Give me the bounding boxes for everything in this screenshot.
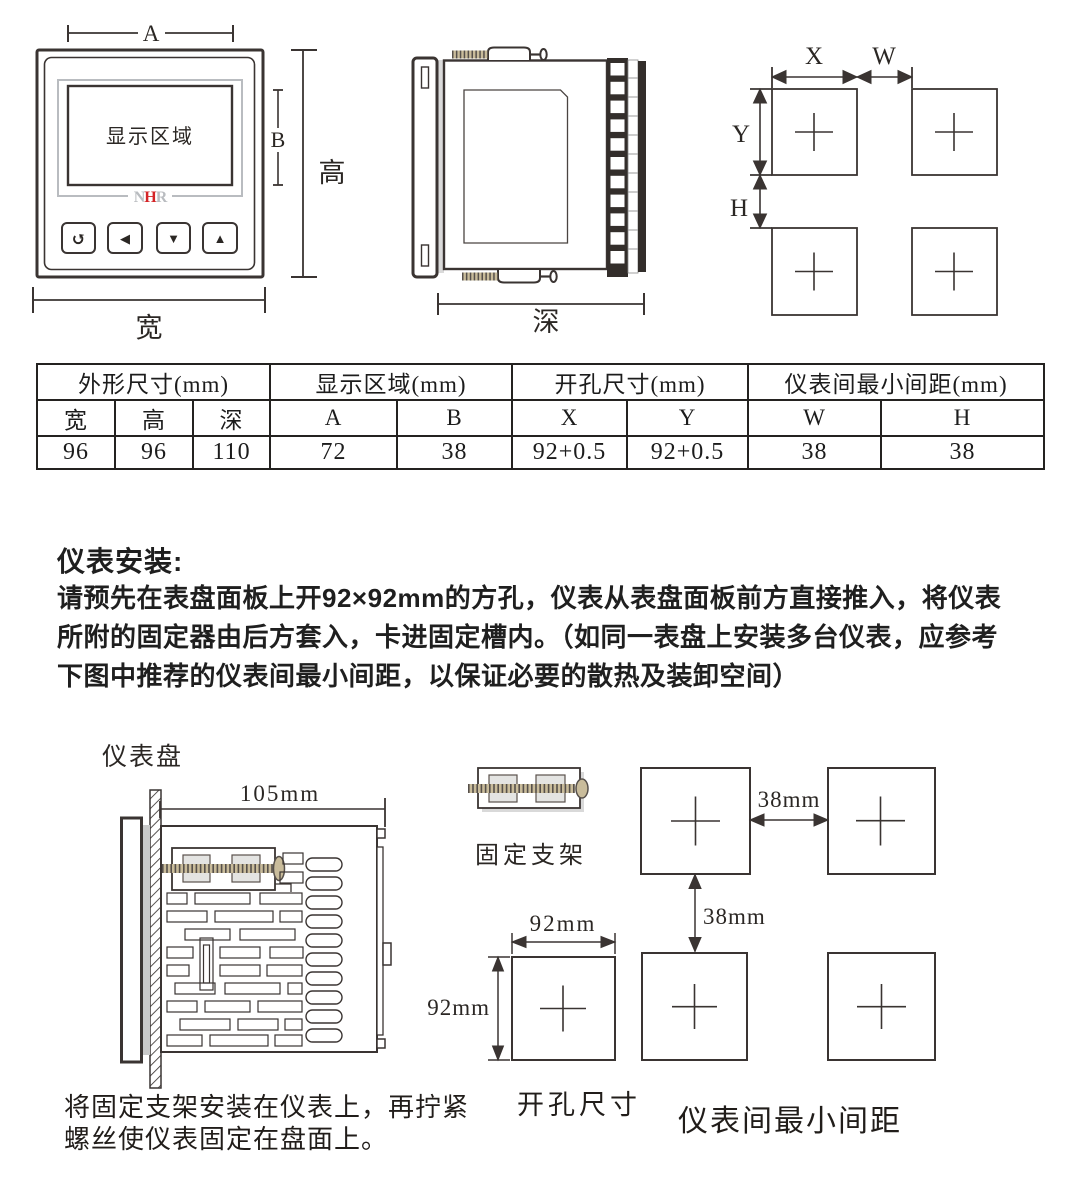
display-area-label: 显示区域	[106, 125, 194, 148]
panel-label: 仪表盘	[102, 743, 183, 771]
table-value-row: 96 96 110 72 38 92+0.5 92+0.5 38 38	[37, 436, 1044, 469]
table-value-cell: 96	[115, 436, 193, 469]
cutout-pattern-diagram: X W Y H	[720, 30, 1030, 330]
rear-rail-stop	[383, 943, 391, 965]
dim-width	[33, 287, 265, 313]
dim-b-label: B	[271, 127, 286, 152]
table-header-cell: 深	[193, 400, 270, 436]
dim-w-label: W	[872, 43, 896, 70]
up-arrow-icon: ▲	[214, 231, 227, 246]
rear-rail	[377, 847, 383, 1035]
table-value-cell: 72	[270, 436, 397, 469]
dim-y-h	[750, 89, 772, 228]
mount-bracket-top	[452, 48, 547, 61]
dim-x-label: X	[805, 43, 823, 70]
table-header-cell: B	[397, 400, 512, 436]
down-arrow-icon: ▼	[167, 231, 180, 246]
table-header-cell: 高	[115, 400, 193, 436]
left-arrow-icon: ◀	[120, 231, 130, 246]
dim-height-label: 高	[319, 158, 346, 188]
table-value-cell: 96	[37, 436, 115, 469]
dim-height	[291, 50, 317, 277]
table-header-cell: 宽	[37, 400, 115, 436]
dim-105mm-label: 105mm	[240, 781, 320, 806]
dim-a-label: A	[143, 21, 160, 46]
cutout-squares	[772, 89, 997, 315]
front-bezel	[413, 58, 437, 277]
installation-body: 请预先在表盘面板上开92×92mm的方孔，仪表从表盘面板前方直接推入，将仪表 所…	[57, 579, 1037, 696]
rear-hook-bottom	[377, 1039, 385, 1048]
dim-width-label: 宽	[136, 313, 163, 343]
installation-heading: 仪表安装:	[57, 540, 183, 580]
screw-head-icon	[550, 271, 556, 282]
table-value-cell: 38	[397, 436, 512, 469]
spacing-caption: 仪表间最小间距	[678, 1096, 902, 1140]
front-view-diagram: A 显示区域 NHR B 高 ↺ ◀ ▼	[30, 15, 360, 350]
table-group-cell: 仪表间最小间距(mm)	[748, 364, 1044, 400]
panel-cross-section	[150, 790, 161, 1088]
dim-h-label: H	[730, 195, 748, 222]
side-view-diagram: 深	[400, 30, 670, 345]
installation-line: 所附的固定器由后方套入，卡进固定槽内。（如同一表盘上安装多台仪表，应参考	[57, 618, 1037, 657]
table-header-cell: A	[270, 400, 397, 436]
rear-hook-top	[377, 829, 385, 838]
dim-y-label: Y	[732, 121, 750, 148]
table-subheader-row: 宽 高 深 A B X Y W H	[37, 400, 1044, 436]
gap-vertical-arrow	[689, 875, 701, 952]
gap-vertical-label: 38mm	[703, 904, 766, 929]
table-value-cell: 38	[881, 436, 1044, 469]
table-group-cell: 外形尺寸(mm)	[37, 364, 270, 400]
table-value-cell: 92+0.5	[627, 436, 748, 469]
table-group-cell: 显示区域(mm)	[270, 364, 512, 400]
table-header-cell: Y	[627, 400, 748, 436]
cutout-height-label: 92mm	[427, 995, 490, 1020]
table-value-cell: 110	[193, 436, 270, 469]
gap-horizontal-arrow	[750, 814, 828, 826]
nhr-logo: NHR	[134, 189, 168, 206]
front-bezel	[122, 818, 142, 1062]
meter-body	[444, 61, 607, 270]
table-value-cell: 38	[748, 436, 881, 469]
bracket-note-line: 螺丝使仪表固定在盘面上。	[64, 1124, 469, 1156]
cutout-width-dim	[512, 933, 615, 954]
bracket-note-line: 将固定支架安装在仪表上，再拧紧	[64, 1092, 469, 1124]
dimension-table: 外形尺寸(mm) 显示区域(mm) 开孔尺寸(mm) 仪表间最小间距(mm) 宽…	[36, 363, 1045, 470]
table-value-cell: 92+0.5	[512, 436, 627, 469]
gap-horizontal-label: 38mm	[758, 787, 821, 812]
table-header-cell: W	[748, 400, 881, 436]
dim-x-w	[772, 67, 912, 88]
terminal-block	[607, 58, 646, 277]
installation-line: 下图中推荐的仪表间最小间距，以保证必要的散热及装卸空间）	[57, 657, 1037, 696]
back-icon: ↺	[71, 229, 86, 249]
table-group-cell: 开孔尺寸(mm)	[512, 364, 748, 400]
cutout-height-dim	[488, 957, 510, 1060]
manual-page: A 显示区域 NHR B 高 ↺ ◀ ▼	[0, 0, 1080, 1202]
cutout-caption: 开孔尺寸	[517, 1083, 641, 1122]
spacing-diagram: 38mm 38mm 92mm 92mm	[440, 760, 1000, 1070]
screw-head-icon	[540, 49, 546, 60]
table-header-cell: X	[512, 400, 627, 436]
mount-bracket-bottom	[462, 270, 557, 283]
bracket-note: 将固定支架安装在仪表上，再拧紧 螺丝使仪表固定在盘面上。	[64, 1092, 469, 1156]
cutout-width-label: 92mm	[530, 911, 597, 936]
dim-depth-label: 深	[533, 307, 560, 337]
table-group-header-row: 外形尺寸(mm) 显示区域(mm) 开孔尺寸(mm) 仪表间最小间距(mm)	[37, 364, 1044, 400]
fixing-bracket-on-body	[162, 848, 291, 892]
table-header-cell: H	[881, 400, 1044, 436]
installation-line: 请预先在表盘面板上开92×92mm的方孔，仪表从表盘面板前方直接推入，将仪表	[57, 579, 1037, 618]
